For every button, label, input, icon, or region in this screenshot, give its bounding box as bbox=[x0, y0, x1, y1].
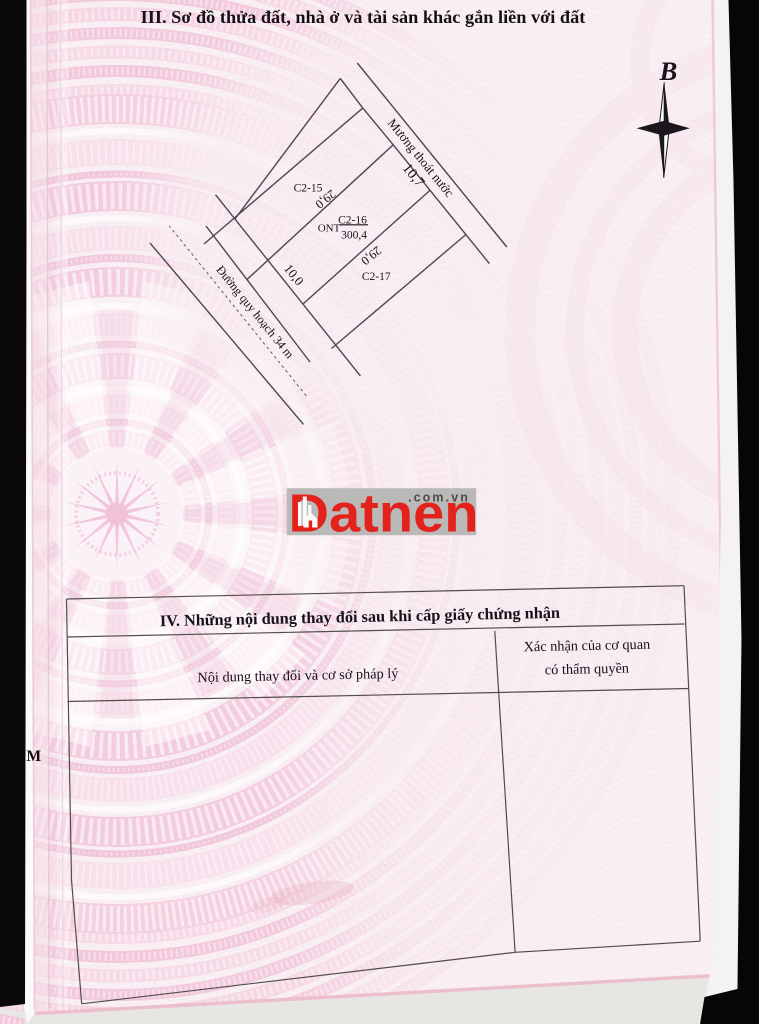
svg-text:có thẩm quyền: có thẩm quyền bbox=[545, 661, 629, 679]
svg-text:300,4: 300,4 bbox=[341, 230, 367, 242]
svg-text:III. Sơ đồ thửa đất, nhà ở và: III. Sơ đồ thửa đất, nhà ở và tài sản kh… bbox=[141, 7, 586, 27]
svg-text:.com.vn: .com.vn bbox=[408, 491, 470, 505]
svg-text:B: B bbox=[659, 56, 678, 86]
svg-text:M: M bbox=[27, 748, 42, 765]
svg-text:Xác nhận của cơ quan: Xác nhận của cơ quan bbox=[523, 637, 650, 656]
svg-text:C2-15: C2-15 bbox=[294, 183, 323, 195]
svg-text:C2-17: C2-17 bbox=[362, 271, 391, 283]
